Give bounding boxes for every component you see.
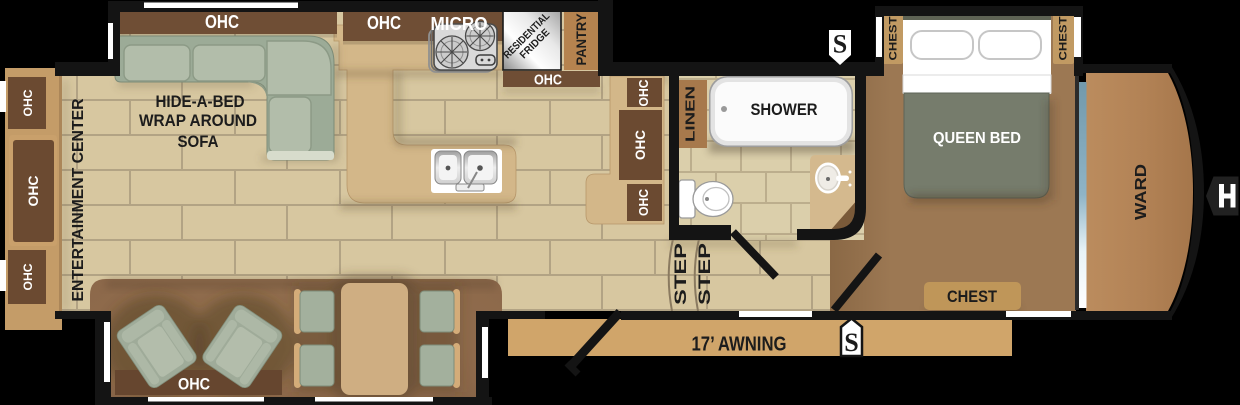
svg-text:STEP: STEP: [695, 243, 714, 305]
svg-text:CHEST: CHEST: [1058, 16, 1070, 60]
svg-text:S: S: [844, 328, 858, 357]
svg-text:CHEST: CHEST: [888, 16, 900, 60]
svg-text:HIDE-A-BED: HIDE-A-BED: [156, 93, 245, 111]
svg-text:OHC: OHC: [25, 176, 41, 207]
svg-text:17’ AWNING: 17’ AWNING: [692, 333, 787, 356]
svg-text:OHC: OHC: [637, 189, 651, 216]
svg-text:OHC: OHC: [178, 376, 210, 394]
svg-text:OHC: OHC: [21, 263, 35, 290]
svg-text:S: S: [833, 30, 847, 59]
svg-text:LINEN: LINEN: [684, 86, 698, 142]
svg-text:CHEST: CHEST: [947, 288, 997, 306]
svg-text:OHC: OHC: [633, 130, 648, 160]
svg-text:WARD: WARD: [1133, 164, 1150, 220]
svg-text:SOFA: SOFA: [178, 133, 219, 151]
svg-text:WRAP AROUND: WRAP AROUND: [139, 112, 257, 130]
svg-text:OHC: OHC: [21, 89, 35, 116]
svg-text:PANTRY: PANTRY: [574, 14, 589, 66]
svg-text:QUEEN BED: QUEEN BED: [933, 130, 1021, 147]
svg-text:SHOWER: SHOWER: [751, 100, 818, 119]
svg-text:OHC: OHC: [534, 73, 562, 89]
svg-text:OHC: OHC: [367, 13, 401, 33]
svg-text:ENTERTAINMENT CENTER: ENTERTAINMENT CENTER: [70, 98, 87, 301]
svg-text:OHC: OHC: [637, 80, 651, 107]
svg-text:MICRO: MICRO: [431, 14, 488, 34]
svg-text:OHC: OHC: [205, 12, 239, 32]
svg-text:STEP: STEP: [671, 243, 690, 305]
